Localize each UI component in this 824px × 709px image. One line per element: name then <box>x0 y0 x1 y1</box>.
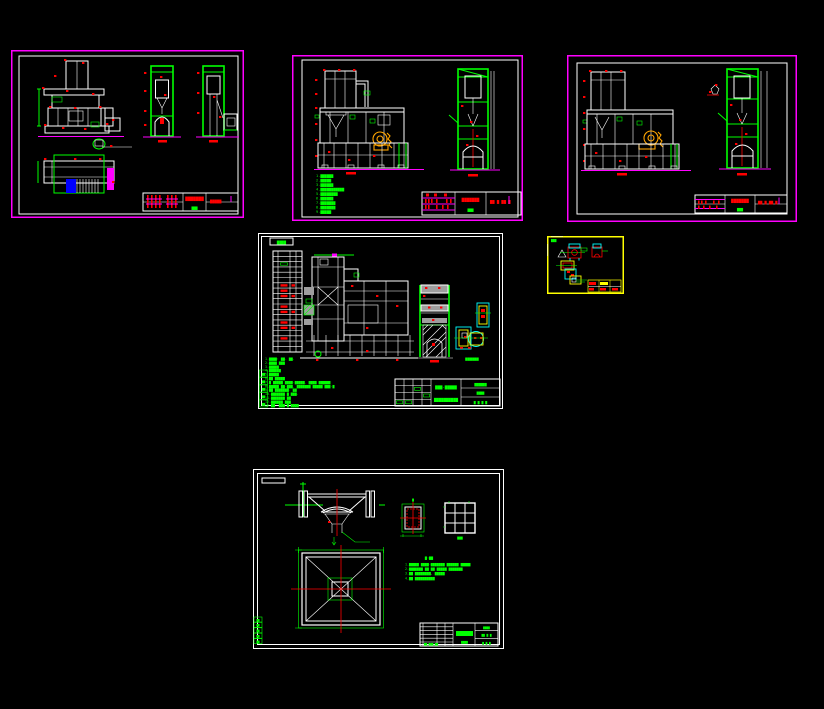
sheet4-title-right-bottom: ▇ ▇ ▇ ▇ <box>473 400 488 404</box>
sheet6-notes: ▇:▇▇ 1.▇▇▇▇▇ ▇▇▇▇-▇▇▇▇▇▇▇ ▇▇▇▇▇▇ ▇▇▇▇▇ 2… <box>405 556 472 580</box>
sheet2-front-view <box>314 69 424 175</box>
sheet6-title-left-row: ▇▇ ▇▇▇ ▇▇ <box>423 642 438 646</box>
sheet2-title-block: ▇▇▇▇▇▇▇ ▇▇▇ ▇▇ ▇ ▇▇ ▇ <box>422 192 521 215</box>
sheet4-title-block: ▇▇▇-▇▇▇▇▇ ▇▇▇▇▇▇▇▇▇▇ ▇▇▇▇▇▇ ▇▇▇▇ ▇ ▇ ▇ ▇ <box>395 379 500 406</box>
sheet1-tower-a <box>143 66 181 143</box>
sheet6-title-badge-text: ▇▇▇▇ <box>460 640 468 644</box>
note-line: 1.▇▇▇▇▇▇ <box>316 174 334 178</box>
note-line: 13.▇▇. ▇▇▇ ▇.▇▇▇▇ <box>265 403 300 407</box>
sheet5-corner-label: ▇▇▇ <box>550 239 557 243</box>
drawing-sheet-2[interactable]: 1.▇▇▇▇▇▇ 2.▇▇▇▇▇ 3.▇▇▇▇▇▇ 4.▇▇▇▇▇▇▇▇▇▇▇ … <box>292 55 523 221</box>
sheet1-plan-view <box>38 155 114 193</box>
sheet3-detail-figure <box>707 84 719 95</box>
revision-cell: ▇▇ <box>261 402 266 406</box>
sheet1-inner-frame <box>19 56 238 214</box>
sheet6-title-right-bottom: ▇ ▇ ▇ <box>481 641 491 645</box>
note-line: 4.▇▇▇▇▇▇▇▇▇▇▇ <box>316 188 345 192</box>
note-line: 3.▇▇▇▇▇▇ <box>316 183 334 187</box>
sheet5-detail-c <box>556 261 587 284</box>
drawing-sheet-3[interactable]: ▇▇▇▇▇▇▇ ▇▇▇ ▇▇ ▇ ▇▇ ▇ <box>567 55 797 222</box>
sheet4-title-center-top: ▇▇▇-▇▇▇▇▇ <box>434 385 457 390</box>
sheet2-subtitle-text: ▇▇▇ <box>466 208 474 212</box>
sheet4-drawing: ▇▇▇▇ <box>258 233 503 409</box>
sheet6-border <box>254 470 504 649</box>
sheet6-plan-view <box>291 545 391 633</box>
sheet4-main-view <box>300 254 418 362</box>
note-line: 6.▇▇▇▇▇▇ <box>316 197 334 201</box>
note-line: 4.▇▇ ▇▇▇▇▇▇▇▇▇▇ <box>405 576 436 580</box>
sheet6-detail-view: ▇ <box>400 498 426 537</box>
sheet4-parts-table <box>273 251 302 352</box>
sheet6-hopper-view <box>285 482 385 545</box>
sheet2-code-text: ▇▇ ▇ ▇▇ ▇ <box>489 199 511 204</box>
note-line: 8.▇▇▇▇▇▇▇ <box>316 206 336 210</box>
sheet4-title-center-bottom: ▇▇▇▇▇▇▇▇▇▇ <box>433 397 459 402</box>
sheet6-grid-label: ▇▇▇ <box>456 536 463 540</box>
sheet5-drawing: ▇▇▇ <box>547 236 624 294</box>
revision-cell: ▇▇ <box>261 394 266 398</box>
drawing-sheet-5[interactable]: ▇▇▇ <box>547 236 624 294</box>
note-line: 3.▇▇ ▇▇▇▇▇▇▇▇, ▇▇▇▇▇ <box>405 572 446 576</box>
sheet3-border <box>568 56 797 222</box>
sheet3-title-text: ▇▇▇▇▇▇▇ <box>730 198 749 204</box>
sheet4-title-right-top: ▇▇▇▇▇▇ <box>473 383 487 387</box>
sheet6-title-right-top: ▇▇▇▇ <box>482 626 490 630</box>
sheet4-detail-views: ▇▇▇▇▇▇▇ <box>454 303 491 361</box>
sheet1-code-text: ▇▇▇▇▇ <box>209 199 222 204</box>
sheet1-front-view <box>37 59 132 149</box>
sheet6-inner-frame <box>258 474 500 645</box>
sheet6-corner-box <box>262 478 285 483</box>
sheet1-tower-b <box>196 66 239 143</box>
sheet1-side-views <box>143 66 239 143</box>
note-line: 9.▇▇▇▇▇ <box>316 210 332 214</box>
sheet5-title-block <box>588 280 621 292</box>
sheet2-side-view <box>449 69 500 177</box>
revision-cell: ▇▇ <box>255 635 260 638</box>
sheet1-drawing: ▇▇▇▇▇▇▇ ▇▇▇ ▇▇▇▇▇ <box>11 50 244 218</box>
sheet3-title-block: ▇▇▇▇▇▇▇ ▇▇▇ ▇▇ ▇ ▇▇ ▇ <box>695 195 787 213</box>
sheet3-code-text: ▇▇ ▇ ▇▇ ▇ <box>757 201 778 205</box>
note-line: 5.▇▇▇▇▇▇▇▇ <box>316 192 338 196</box>
sheet6-detail-label: ▇ <box>411 498 414 502</box>
cad-workspace: ▇▇▇▇▇▇▇ ▇▇▇ ▇▇▇▇▇ <box>0 0 824 709</box>
sheet5-triangle-detail <box>558 250 566 257</box>
note-line: 1.▇▇▇▇▇ ▇▇▇▇-▇▇▇▇▇▇▇ ▇▇▇▇▇▇ ▇▇▇▇▇ <box>405 563 472 567</box>
sheet5-border <box>548 237 624 294</box>
sheet3-subtitle-text: ▇▇▇ <box>736 208 744 212</box>
sheet3-side-view <box>718 69 771 176</box>
sheet4-title-right-mid: ▇▇▇▇ <box>476 391 485 395</box>
revision-cell: ▇▇ <box>261 379 266 383</box>
sheet6-title-badge <box>456 631 473 636</box>
revision-cell: ▇▇ <box>261 387 266 391</box>
sheet6-revision-strip: ▇▇ ▇▇ ▇▇ ▇▇ ▇▇ <box>254 617 262 644</box>
sheet2-title-text: ▇▇▇▇▇▇▇ <box>461 197 480 203</box>
revision-cell: ▇▇ <box>255 630 260 633</box>
drawing-sheet-4[interactable]: ▇▇▇▇ <box>258 233 503 409</box>
sheet5-detail-a <box>560 244 587 261</box>
sheet4-detail-label: ▇▇▇▇▇▇▇ <box>464 357 479 361</box>
sheet4-header-text: ▇▇▇▇ <box>276 239 287 244</box>
sheet3-front-view <box>581 70 691 176</box>
sheet2-notes: 1.▇▇▇▇▇▇ 2.▇▇▇▇▇ 3.▇▇▇▇▇▇ 4.▇▇▇▇▇▇▇▇▇▇▇ … <box>316 174 345 214</box>
sheet6-title-block: ▇▇ ▇▇▇ ▇▇ ▇▇▇▇ ▇▇▇▇ ▇▇ ▇ ▇ ▇ ▇ ▇ <box>420 623 498 646</box>
drawing-sheet-1[interactable]: ▇▇▇▇▇▇▇ ▇▇▇ ▇▇▇▇▇ <box>11 50 244 218</box>
sheet3-inner-frame <box>577 63 787 214</box>
revision-cell: ▇▇ <box>261 372 266 376</box>
sheet4-side-view <box>417 285 453 363</box>
sheet6-notes-heading: ▇:▇▇ <box>424 556 434 560</box>
sheet1-title-text: ▇▇▇▇▇▇▇ <box>184 196 204 202</box>
revision-cell: ▇▇ <box>255 624 260 627</box>
sheet2-drawing: 1.▇▇▇▇▇▇ 2.▇▇▇▇▇ 3.▇▇▇▇▇▇ 4.▇▇▇▇▇▇▇▇▇▇▇ … <box>292 55 523 221</box>
sheet6-grid-view: ▇▇▇ <box>443 501 475 540</box>
sheet6-title-right-mid: ▇▇ ▇ ▇ <box>480 633 491 637</box>
sheet6-drawing: ▇ ▇▇▇ <box>253 469 504 649</box>
sheet3-drawing: ▇▇▇▇▇▇▇ ▇▇▇ ▇▇ ▇ ▇▇ ▇ <box>567 55 797 222</box>
revision-cell: ▇▇ <box>255 640 260 643</box>
sheet1-title-block: ▇▇▇▇▇▇▇ ▇▇▇ ▇▇▇▇▇ <box>143 193 238 211</box>
note-line: 7.▇▇▇▇▇▇▇ <box>316 201 336 205</box>
note-line: 2.▇▇▇▇▇ <box>316 179 332 183</box>
note-line: 2.▇▇▇▇▇▇▇ ▇▇ ▇▇ ▇▇▇▇▇ ▇▇▇▇▇▇▇ <box>405 567 464 571</box>
sheet5-detail-b <box>592 244 608 257</box>
drawing-sheet-6[interactable]: ▇ ▇▇▇ <box>253 469 504 649</box>
revision-cell: ▇▇ <box>255 619 260 622</box>
sheet1-subtitle-text: ▇▇▇ <box>190 206 198 210</box>
sheet4-notes: 1.▇▇▇▇: ▇▇. ▇▇. 2.▇▇▇▇ ▇▇▇ 3.▇▇▇▇▇ 4.▇▇▇… <box>265 357 335 407</box>
sheet4-header-box: ▇▇▇▇ <box>270 238 293 245</box>
